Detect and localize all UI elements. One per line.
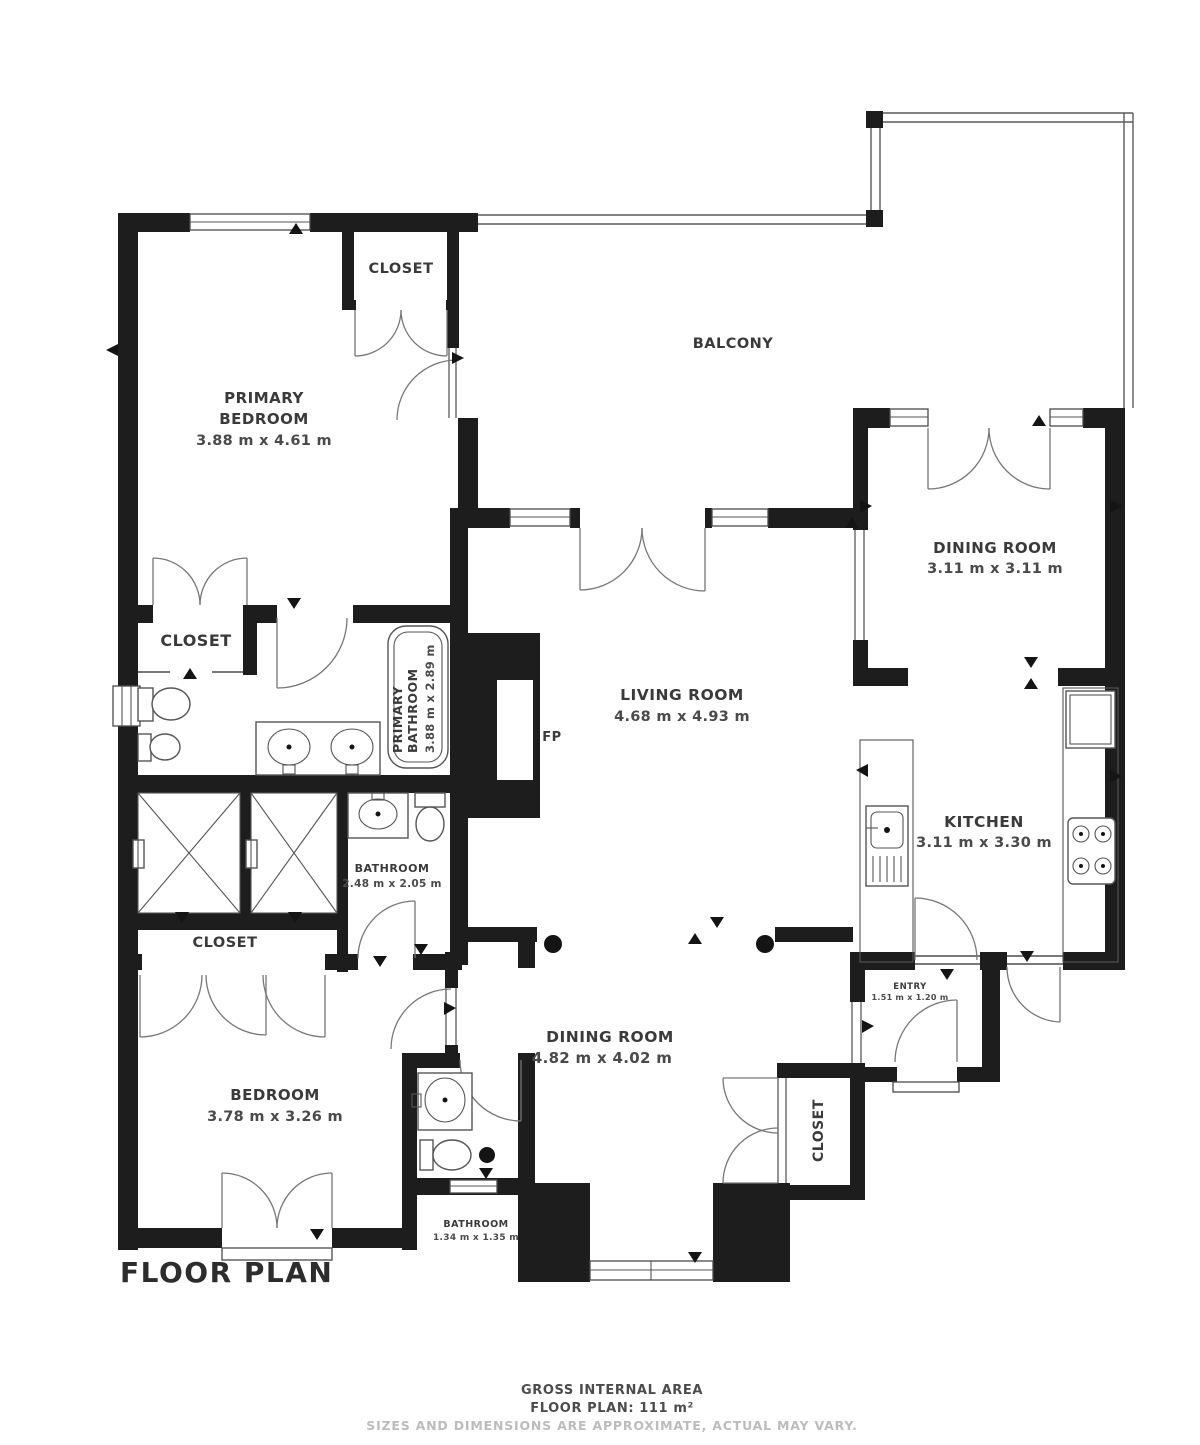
- shower-stall-icon: [133, 793, 240, 913]
- primary-bedroom-name-1: PRIMARY: [224, 389, 304, 407]
- threshold-entry: [893, 1082, 959, 1092]
- floor-plan-drawing: PRIMARY BEDROOM 3.88 m x 4.61 m CLOSET B…: [0, 0, 1200, 1445]
- bathroom-small-dims: 1.34 m x 1.35 m: [433, 1233, 519, 1243]
- fridge-icon: [1066, 691, 1115, 748]
- room-label-bathroom-small: BATHROOM 1.34 m x 1.35 m: [433, 1219, 519, 1243]
- closet-br-name: CLOSET: [811, 1099, 827, 1162]
- window-bathroom-small: [450, 1180, 497, 1193]
- window-dining-left: [890, 409, 928, 426]
- column-dot: [756, 935, 774, 953]
- window-dining-right: [1050, 409, 1083, 426]
- toilet-icon: [420, 1140, 471, 1170]
- primary-bedroom-dims: 3.88 m x 4.61 m: [196, 433, 332, 449]
- entry-name: ENTRY: [893, 982, 927, 992]
- dining-upper-name: DINING ROOM: [933, 539, 1057, 557]
- entry-dims: 1.51 m x 1.20 m: [872, 993, 949, 1002]
- window-living-right: [712, 509, 768, 526]
- toilet-icon: [415, 793, 445, 841]
- dining-lower-name: DINING ROOM: [546, 1028, 674, 1046]
- dining-upper-dims: 3.11 m x 3.11 m: [927, 561, 1063, 577]
- kitchen-dims: 3.11 m x 3.30 m: [916, 835, 1052, 851]
- primary-bathroom-name-1: PRIMARY: [390, 686, 405, 753]
- toilet-icon: [138, 688, 190, 721]
- fireplace-label: FP: [542, 730, 561, 745]
- kitchen-sink-icon: [866, 806, 908, 886]
- room-label-living-room: LIVING ROOM 4.68 m x 4.93 m: [614, 686, 750, 725]
- living-room-name: LIVING ROOM: [620, 686, 744, 704]
- floor-plan-page: PRIMARY BEDROOM 3.88 m x 4.61 m CLOSET B…: [0, 0, 1200, 1445]
- vanity-sink-icon: [348, 793, 408, 838]
- page-title: FLOOR PLAN: [120, 1256, 333, 1289]
- sink-icon: [412, 1073, 472, 1130]
- footer: GROSS INTERNAL AREA FLOOR PLAN: 111 m² S…: [366, 1383, 857, 1433]
- bedroom-dims: 3.78 m x 3.26 m: [207, 1109, 343, 1125]
- room-label-bedroom: BEDROOM 3.78 m x 3.26 m: [207, 1086, 343, 1125]
- room-label-closet-lower: CLOSET: [193, 935, 258, 951]
- column-dot: [544, 935, 562, 953]
- primary-bedroom-name-2: BEDROOM: [219, 410, 309, 428]
- bidet-icon: [138, 734, 180, 761]
- labels: PRIMARY BEDROOM 3.88 m x 4.61 m CLOSET B…: [120, 261, 1063, 1433]
- room-label-closet-mid: CLOSET: [160, 631, 231, 650]
- room-label-dining-lower: DINING ROOM 4.82 m x 4.02 m: [532, 1028, 674, 1067]
- living-room-dims: 4.68 m x 4.93 m: [614, 709, 750, 725]
- bathroom-mid-dims: 2.48 m x 2.05 m: [342, 878, 442, 890]
- window-bottom-bay: [590, 1261, 713, 1280]
- balcony-railing: [478, 111, 1133, 408]
- stove-icon: [1068, 818, 1115, 884]
- window-bedroom-top: [190, 214, 310, 230]
- room-label-closet-bottom-right: CLOSET: [811, 1099, 827, 1162]
- floor-drain-dot: [479, 1147, 495, 1163]
- room-label-kitchen: KITCHEN 3.11 m x 3.30 m: [916, 813, 1052, 851]
- window-living-left: [510, 509, 570, 526]
- double-vanity-icon: [256, 722, 380, 775]
- primary-bathroom-dims: 3.88 m x 2.89 m: [423, 644, 437, 753]
- room-label-dining-upper: DINING ROOM 3.11 m x 3.11 m: [927, 539, 1063, 577]
- fireplace-icon: [455, 633, 540, 818]
- room-label-balcony: BALCONY: [693, 336, 774, 352]
- bedroom-name: BEDROOM: [230, 1086, 320, 1104]
- room-label-entry: ENTRY 1.51 m x 1.20 m: [872, 982, 949, 1002]
- room-label-bathroom-mid: BATHROOM 2.48 m x 2.05 m: [342, 862, 442, 890]
- bathroom-small-name: BATHROOM: [443, 1219, 508, 1230]
- bathroom-mid-name: BATHROOM: [355, 862, 430, 875]
- room-label-primary-bedroom: PRIMARY BEDROOM 3.88 m x 4.61 m: [196, 389, 332, 449]
- kitchen-name: KITCHEN: [944, 813, 1024, 831]
- dining-lower-dims: 4.82 m x 4.02 m: [532, 1049, 672, 1067]
- room-label-closet-top: CLOSET: [369, 261, 434, 277]
- shower-stall-icon: [246, 793, 337, 913]
- footer-line2: FLOOR PLAN: 111 m²: [530, 1401, 694, 1416]
- footer-line3: SIZES AND DIMENSIONS ARE APPROXIMATE, AC…: [366, 1418, 857, 1433]
- window-left-wall: [113, 686, 140, 726]
- primary-bathroom-name-2: BATHROOM: [405, 668, 420, 753]
- footer-line1: GROSS INTERNAL AREA: [521, 1383, 703, 1398]
